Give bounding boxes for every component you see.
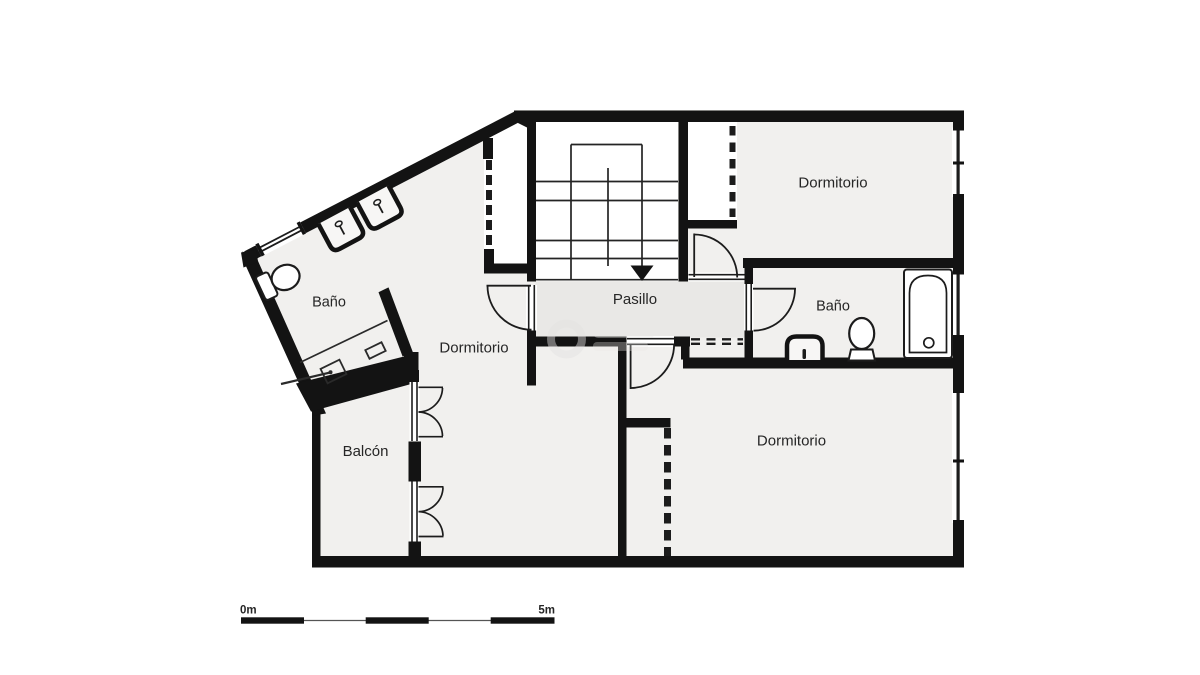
svg-text:5m: 5m — [538, 605, 555, 617]
svg-text:Baño: Baño — [816, 299, 850, 315]
svg-text:0m: 0m — [240, 605, 257, 617]
svg-text:Dormitorio: Dormitorio — [757, 433, 826, 450]
svg-text:Balcón: Balcón — [343, 443, 389, 460]
svg-text:Pasillo: Pasillo — [613, 291, 657, 308]
svg-text:Dormitorio: Dormitorio — [439, 340, 508, 357]
svg-text:Baño: Baño — [312, 295, 346, 311]
svg-text:Dormitorio: Dormitorio — [798, 175, 867, 192]
